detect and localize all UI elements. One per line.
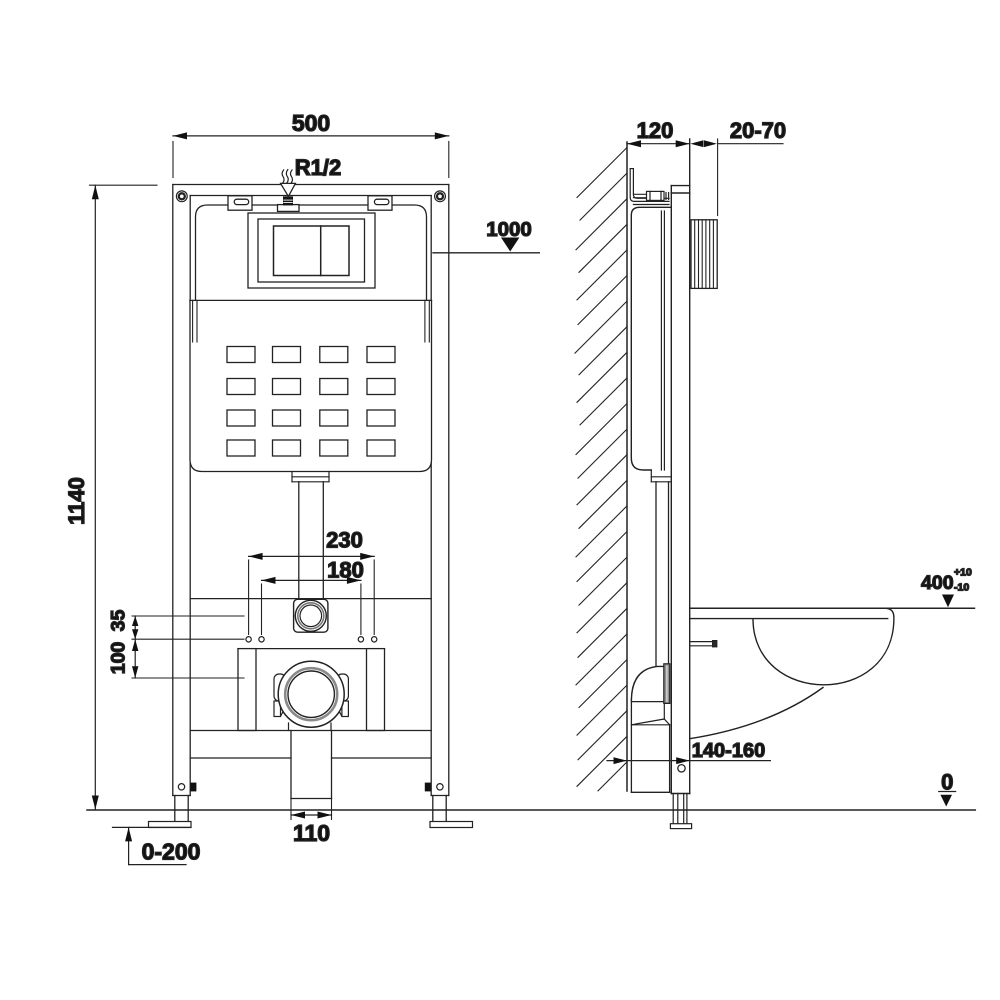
svg-text:-10: -10 [954,582,969,594]
svg-text:500: 500 [292,110,330,136]
svg-text:400: 400 [921,572,954,594]
svg-text:+10: +10 [954,566,972,578]
svg-text:20-70: 20-70 [730,118,786,143]
svg-text:0-200: 0-200 [142,839,201,865]
svg-text:35: 35 [108,610,130,632]
svg-text:120: 120 [637,118,674,143]
svg-text:140-160: 140-160 [692,740,765,762]
svg-text:1140: 1140 [64,477,89,525]
svg-text:180: 180 [327,558,364,583]
svg-text:230: 230 [326,528,363,553]
svg-text:0: 0 [941,770,953,795]
svg-text:100: 100 [108,642,130,675]
svg-text:110: 110 [293,820,330,846]
svg-text:R1/2: R1/2 [295,155,341,180]
